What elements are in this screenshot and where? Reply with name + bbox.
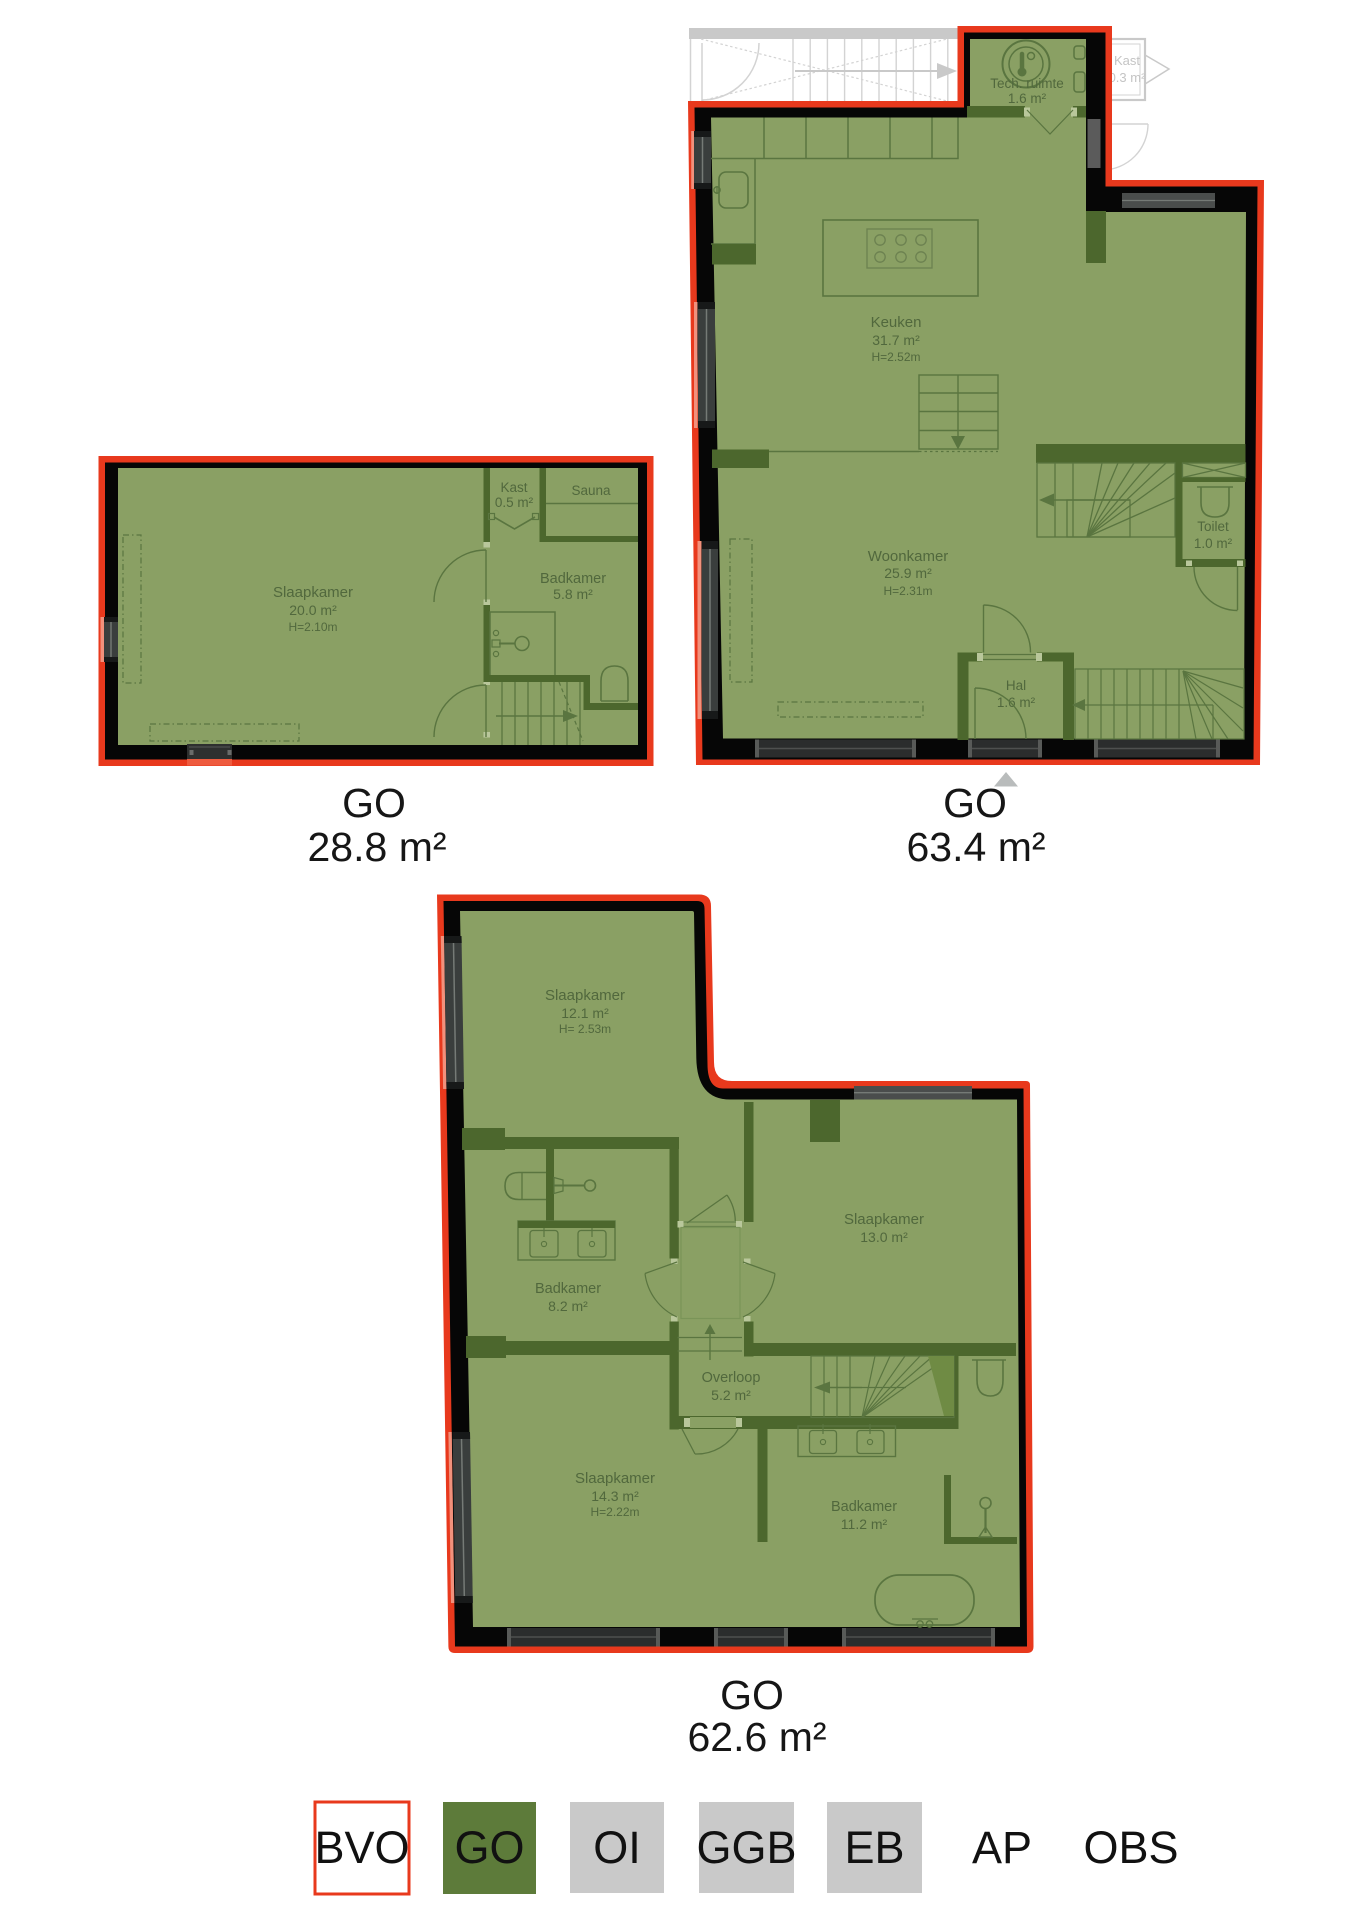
svg-text:OI: OI [593, 1822, 641, 1873]
svg-text:5.2 m²: 5.2 m² [711, 1387, 751, 1403]
svg-text:Badkamer: Badkamer [535, 1281, 601, 1297]
svg-text:OBS: OBS [1083, 1822, 1178, 1873]
svg-text:8.2 m²: 8.2 m² [548, 1298, 588, 1314]
svg-text:Sauna: Sauna [571, 483, 611, 498]
svg-text:Toilet: Toilet [1197, 519, 1229, 534]
svg-text:BVO: BVO [314, 1822, 409, 1873]
svg-text:GO: GO [720, 1672, 784, 1718]
svg-text:Slaapkamer: Slaapkamer [273, 584, 353, 601]
svg-text:H=2.22m: H=2.22m [590, 1505, 639, 1519]
svg-text:Kast: Kast [500, 480, 527, 495]
svg-text:GO: GO [943, 780, 1007, 826]
svg-text:12.1 m²: 12.1 m² [561, 1005, 609, 1021]
svg-text:Kast: Kast [1114, 53, 1140, 68]
svg-text:GO: GO [342, 780, 406, 826]
svg-text:Slaapkamer: Slaapkamer [844, 1211, 924, 1228]
svg-text:0.5 m²: 0.5 m² [495, 495, 534, 510]
svg-text:Overloop: Overloop [702, 1370, 761, 1386]
svg-text:63.4 m²: 63.4 m² [907, 824, 1046, 870]
svg-text:1.0 m²: 1.0 m² [1194, 536, 1233, 551]
svg-text:31.7 m²: 31.7 m² [872, 332, 920, 348]
svg-text:20.0 m²: 20.0 m² [289, 602, 337, 618]
svg-text:28.8 m²: 28.8 m² [308, 824, 447, 870]
svg-text:GO: GO [454, 1822, 524, 1873]
svg-text:Badkamer: Badkamer [831, 1499, 897, 1515]
svg-text:H=2.10m: H=2.10m [288, 620, 337, 634]
svg-text:13.0 m²: 13.0 m² [860, 1229, 908, 1245]
svg-text:11.2 m²: 11.2 m² [841, 1516, 888, 1532]
svg-text:Keuken: Keuken [871, 314, 922, 331]
svg-text:62.6 m²: 62.6 m² [688, 1714, 827, 1760]
svg-text:25.9 m²: 25.9 m² [884, 565, 932, 581]
svg-text:H=2.31m: H=2.31m [883, 584, 932, 598]
svg-text:Slaapkamer: Slaapkamer [575, 1470, 655, 1487]
svg-text:14.3 m²: 14.3 m² [591, 1488, 639, 1504]
svg-text:Slaapkamer: Slaapkamer [545, 987, 625, 1004]
svg-text:Woonkamer: Woonkamer [868, 548, 949, 565]
svg-text:Tech. ruimte: Tech. ruimte [990, 76, 1064, 91]
svg-text:H= 2.53m: H= 2.53m [559, 1022, 611, 1036]
svg-text:EB: EB [844, 1822, 904, 1873]
svg-text:Badkamer: Badkamer [540, 571, 606, 587]
svg-text:AP: AP [972, 1822, 1032, 1873]
svg-text:1.6 m²: 1.6 m² [1008, 91, 1047, 106]
svg-text:GGB: GGB [696, 1822, 796, 1873]
svg-text:Hal: Hal [1006, 678, 1026, 693]
svg-text:H=2.52m: H=2.52m [871, 350, 920, 364]
svg-text:5.8 m²: 5.8 m² [553, 586, 593, 602]
svg-text:0.3 m²: 0.3 m² [1109, 70, 1147, 85]
